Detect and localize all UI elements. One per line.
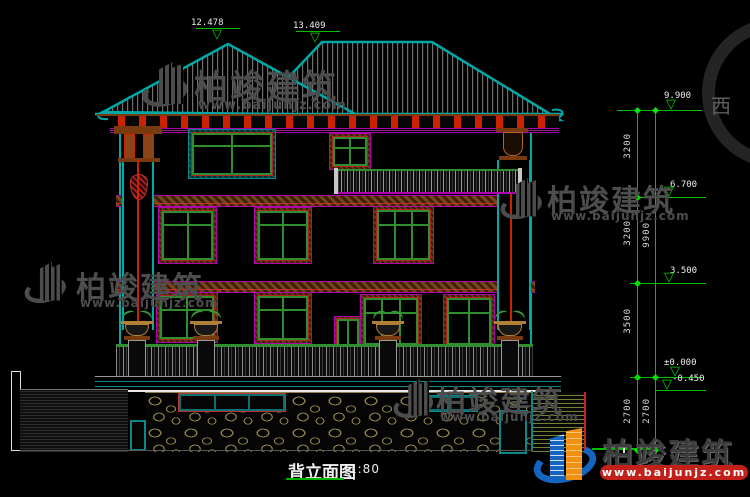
door-panel xyxy=(351,149,365,164)
brand-building-right-icon xyxy=(566,428,582,480)
elevation-triangle-icon: ▽ xyxy=(666,98,676,111)
watermark-logo-icon xyxy=(500,178,548,220)
watermark-url: www.baijunjz.com xyxy=(80,296,219,310)
window-2f-2 xyxy=(254,207,312,264)
watermark-url: www.baijunjz.com xyxy=(551,209,690,223)
roof-marker-line-left xyxy=(196,28,240,29)
brand-url-ribbon: www.baijunjz.com xyxy=(600,465,748,480)
window-pane xyxy=(284,311,306,338)
plant-icon xyxy=(121,308,153,322)
window-pane xyxy=(233,135,270,145)
brand-building-left-icon xyxy=(550,434,564,480)
watermark-url: www.baijunjz.com xyxy=(198,98,347,113)
window-pane xyxy=(413,226,428,258)
elevation-triangle-icon: ▽ xyxy=(212,28,222,41)
window-pane xyxy=(470,300,489,312)
stamp-character: 西 xyxy=(711,90,731,119)
watermark-url: www.baijunjz.com xyxy=(440,410,579,424)
elevation-triangle-icon: ▽ xyxy=(662,378,672,391)
terrace-fence xyxy=(116,344,533,378)
door-panel xyxy=(335,139,349,147)
window-pane xyxy=(396,212,411,224)
elevation-triangle-icon: ▽ xyxy=(664,271,674,284)
window-pane xyxy=(194,147,231,173)
window-pane xyxy=(379,226,394,258)
building-icon xyxy=(516,178,538,217)
title-underline xyxy=(286,478,344,480)
dim-text-base-outer: 2700 xyxy=(642,398,652,424)
window-pane xyxy=(449,314,468,343)
elevation-triangle-icon: ▽ xyxy=(310,31,320,44)
flower-pot-1 xyxy=(121,308,153,378)
flower-pot-2 xyxy=(190,308,222,378)
dim-text-3f: 3200 xyxy=(623,133,633,159)
terrain-window xyxy=(130,420,146,451)
window-pane xyxy=(449,300,468,312)
dim-text-total: 9900 xyxy=(642,222,652,248)
window-pane xyxy=(260,311,282,338)
pedestal xyxy=(501,340,519,378)
dim-text-1f: 3500 xyxy=(623,308,633,334)
door-panel xyxy=(339,321,347,344)
pedestal xyxy=(197,340,215,378)
window-pane xyxy=(379,212,394,224)
window-pane xyxy=(189,213,212,224)
eave-trim-purple xyxy=(110,130,559,131)
window-pane xyxy=(413,212,428,224)
eave-trim-magenta-1 xyxy=(110,128,559,129)
vent-pane xyxy=(216,396,249,409)
roof-marker-line-right xyxy=(296,31,340,32)
building-icon xyxy=(408,379,429,416)
drawing-scale: 1:80 xyxy=(349,462,380,476)
level-line-9900 xyxy=(617,110,702,111)
window-pane xyxy=(260,213,282,224)
corbel-row xyxy=(118,116,559,128)
elevation-label-floor2: 3.500 xyxy=(670,266,697,276)
pot-bowl xyxy=(125,324,149,336)
dimension-line-outer xyxy=(655,110,656,450)
elevation-label-ground: ±0.000 xyxy=(664,358,697,368)
door-panel xyxy=(335,149,349,164)
left-capital-post-1 xyxy=(124,134,135,160)
vent-pane xyxy=(250,396,283,409)
flower-pot-3 xyxy=(372,308,404,378)
dim-text-base-inner: 2700 xyxy=(623,398,633,424)
stair-red-line xyxy=(584,392,586,452)
railing-post-left xyxy=(334,168,338,194)
window-3f-left xyxy=(188,129,276,179)
watermark-logo-icon xyxy=(142,62,194,108)
window-pane xyxy=(164,213,187,224)
window-pane xyxy=(284,226,306,258)
building-icon xyxy=(159,62,183,104)
window-pane xyxy=(162,311,186,337)
window-pane xyxy=(396,226,411,258)
door-panel xyxy=(351,139,365,147)
window-pane xyxy=(470,314,489,343)
window-pane xyxy=(284,298,306,309)
elevation-label-terrace: -0.450 xyxy=(672,374,705,384)
building-icon xyxy=(40,262,62,301)
door-panel xyxy=(349,321,357,344)
watermark-logo-icon xyxy=(393,379,439,419)
plant-icon xyxy=(190,308,222,322)
flower-pot-4 xyxy=(494,308,526,378)
watermark-logo-icon xyxy=(24,262,72,304)
plant-icon xyxy=(372,308,404,322)
dim-text-2f: 3200 xyxy=(623,220,633,246)
window-2f-1 xyxy=(158,207,217,264)
basement-vent-left xyxy=(178,393,286,412)
balcony-railing-3f xyxy=(335,169,521,194)
balcony-door-3f xyxy=(329,133,371,170)
window-pane xyxy=(164,226,187,258)
window-2f-3 xyxy=(373,206,434,264)
pot-bowl xyxy=(498,324,522,336)
pot-bowl xyxy=(376,324,400,336)
window-pane xyxy=(260,226,282,258)
vent-pane xyxy=(181,396,214,409)
pot-bowl xyxy=(194,324,218,336)
left-terrain-block xyxy=(20,389,128,452)
window-pane xyxy=(233,147,270,173)
window-1f-2 xyxy=(254,292,312,344)
window-1f-4 xyxy=(443,294,495,349)
cad-elevation-drawing: 3200 3200 3500 2700 9900 2700 9.900 ▽ 6.… xyxy=(0,0,750,497)
window-pane xyxy=(260,298,282,309)
window-pane xyxy=(194,135,231,145)
pedestal xyxy=(128,340,146,378)
left-capital-post-2 xyxy=(143,134,154,160)
plant-icon xyxy=(494,308,526,322)
left-column-capital xyxy=(114,126,162,134)
capital-urn xyxy=(503,132,523,156)
pedestal xyxy=(379,340,397,378)
window-pane xyxy=(284,213,306,224)
floor-band-3f xyxy=(116,195,535,207)
ground-baseline xyxy=(20,450,533,451)
window-pane xyxy=(189,226,212,258)
